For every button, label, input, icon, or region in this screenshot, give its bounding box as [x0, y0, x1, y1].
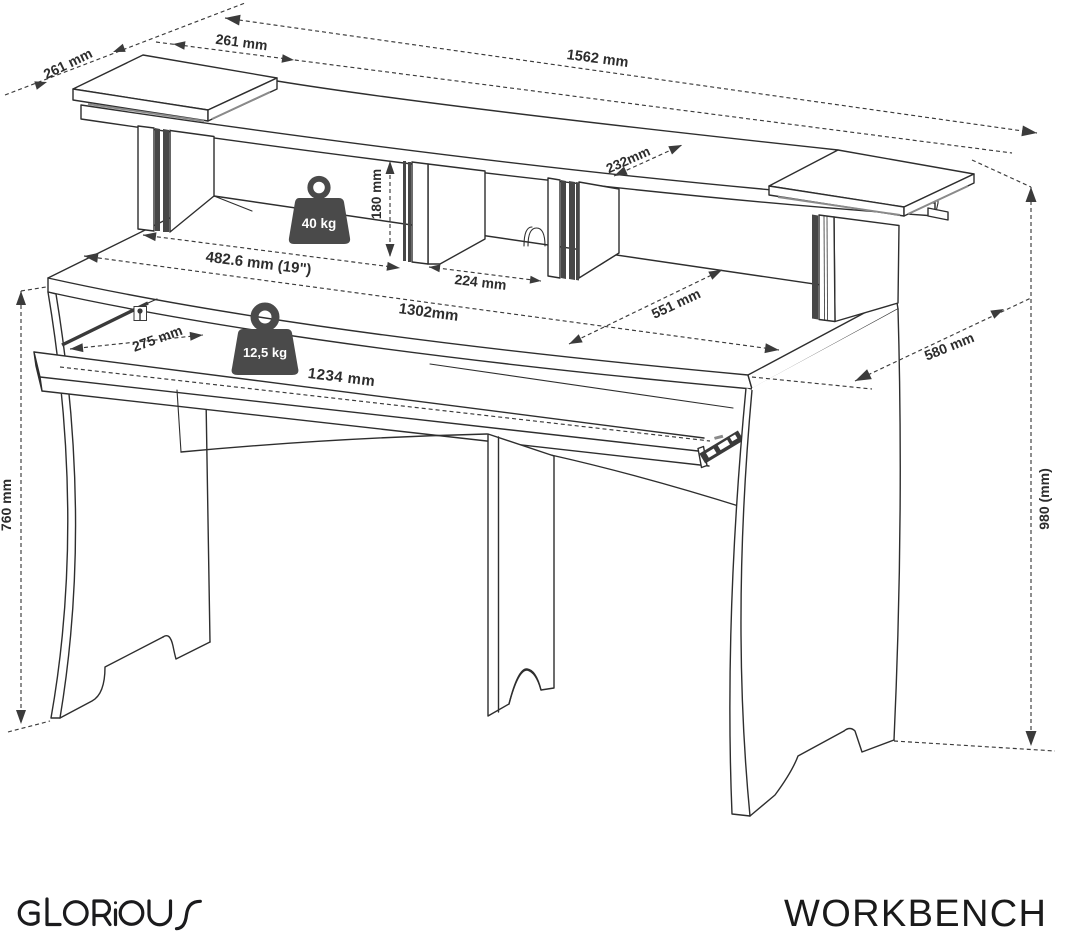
- svg-text:980 (mm): 980 (mm): [1036, 468, 1052, 529]
- svg-text:180 mm: 180 mm: [369, 169, 384, 219]
- svg-text:12,5 kg: 12,5 kg: [243, 345, 287, 360]
- svg-text:WORKBENCH: WORKBENCH: [784, 893, 1046, 935]
- svg-text:40 kg: 40 kg: [302, 216, 337, 231]
- svg-text:760 mm: 760 mm: [0, 479, 14, 531]
